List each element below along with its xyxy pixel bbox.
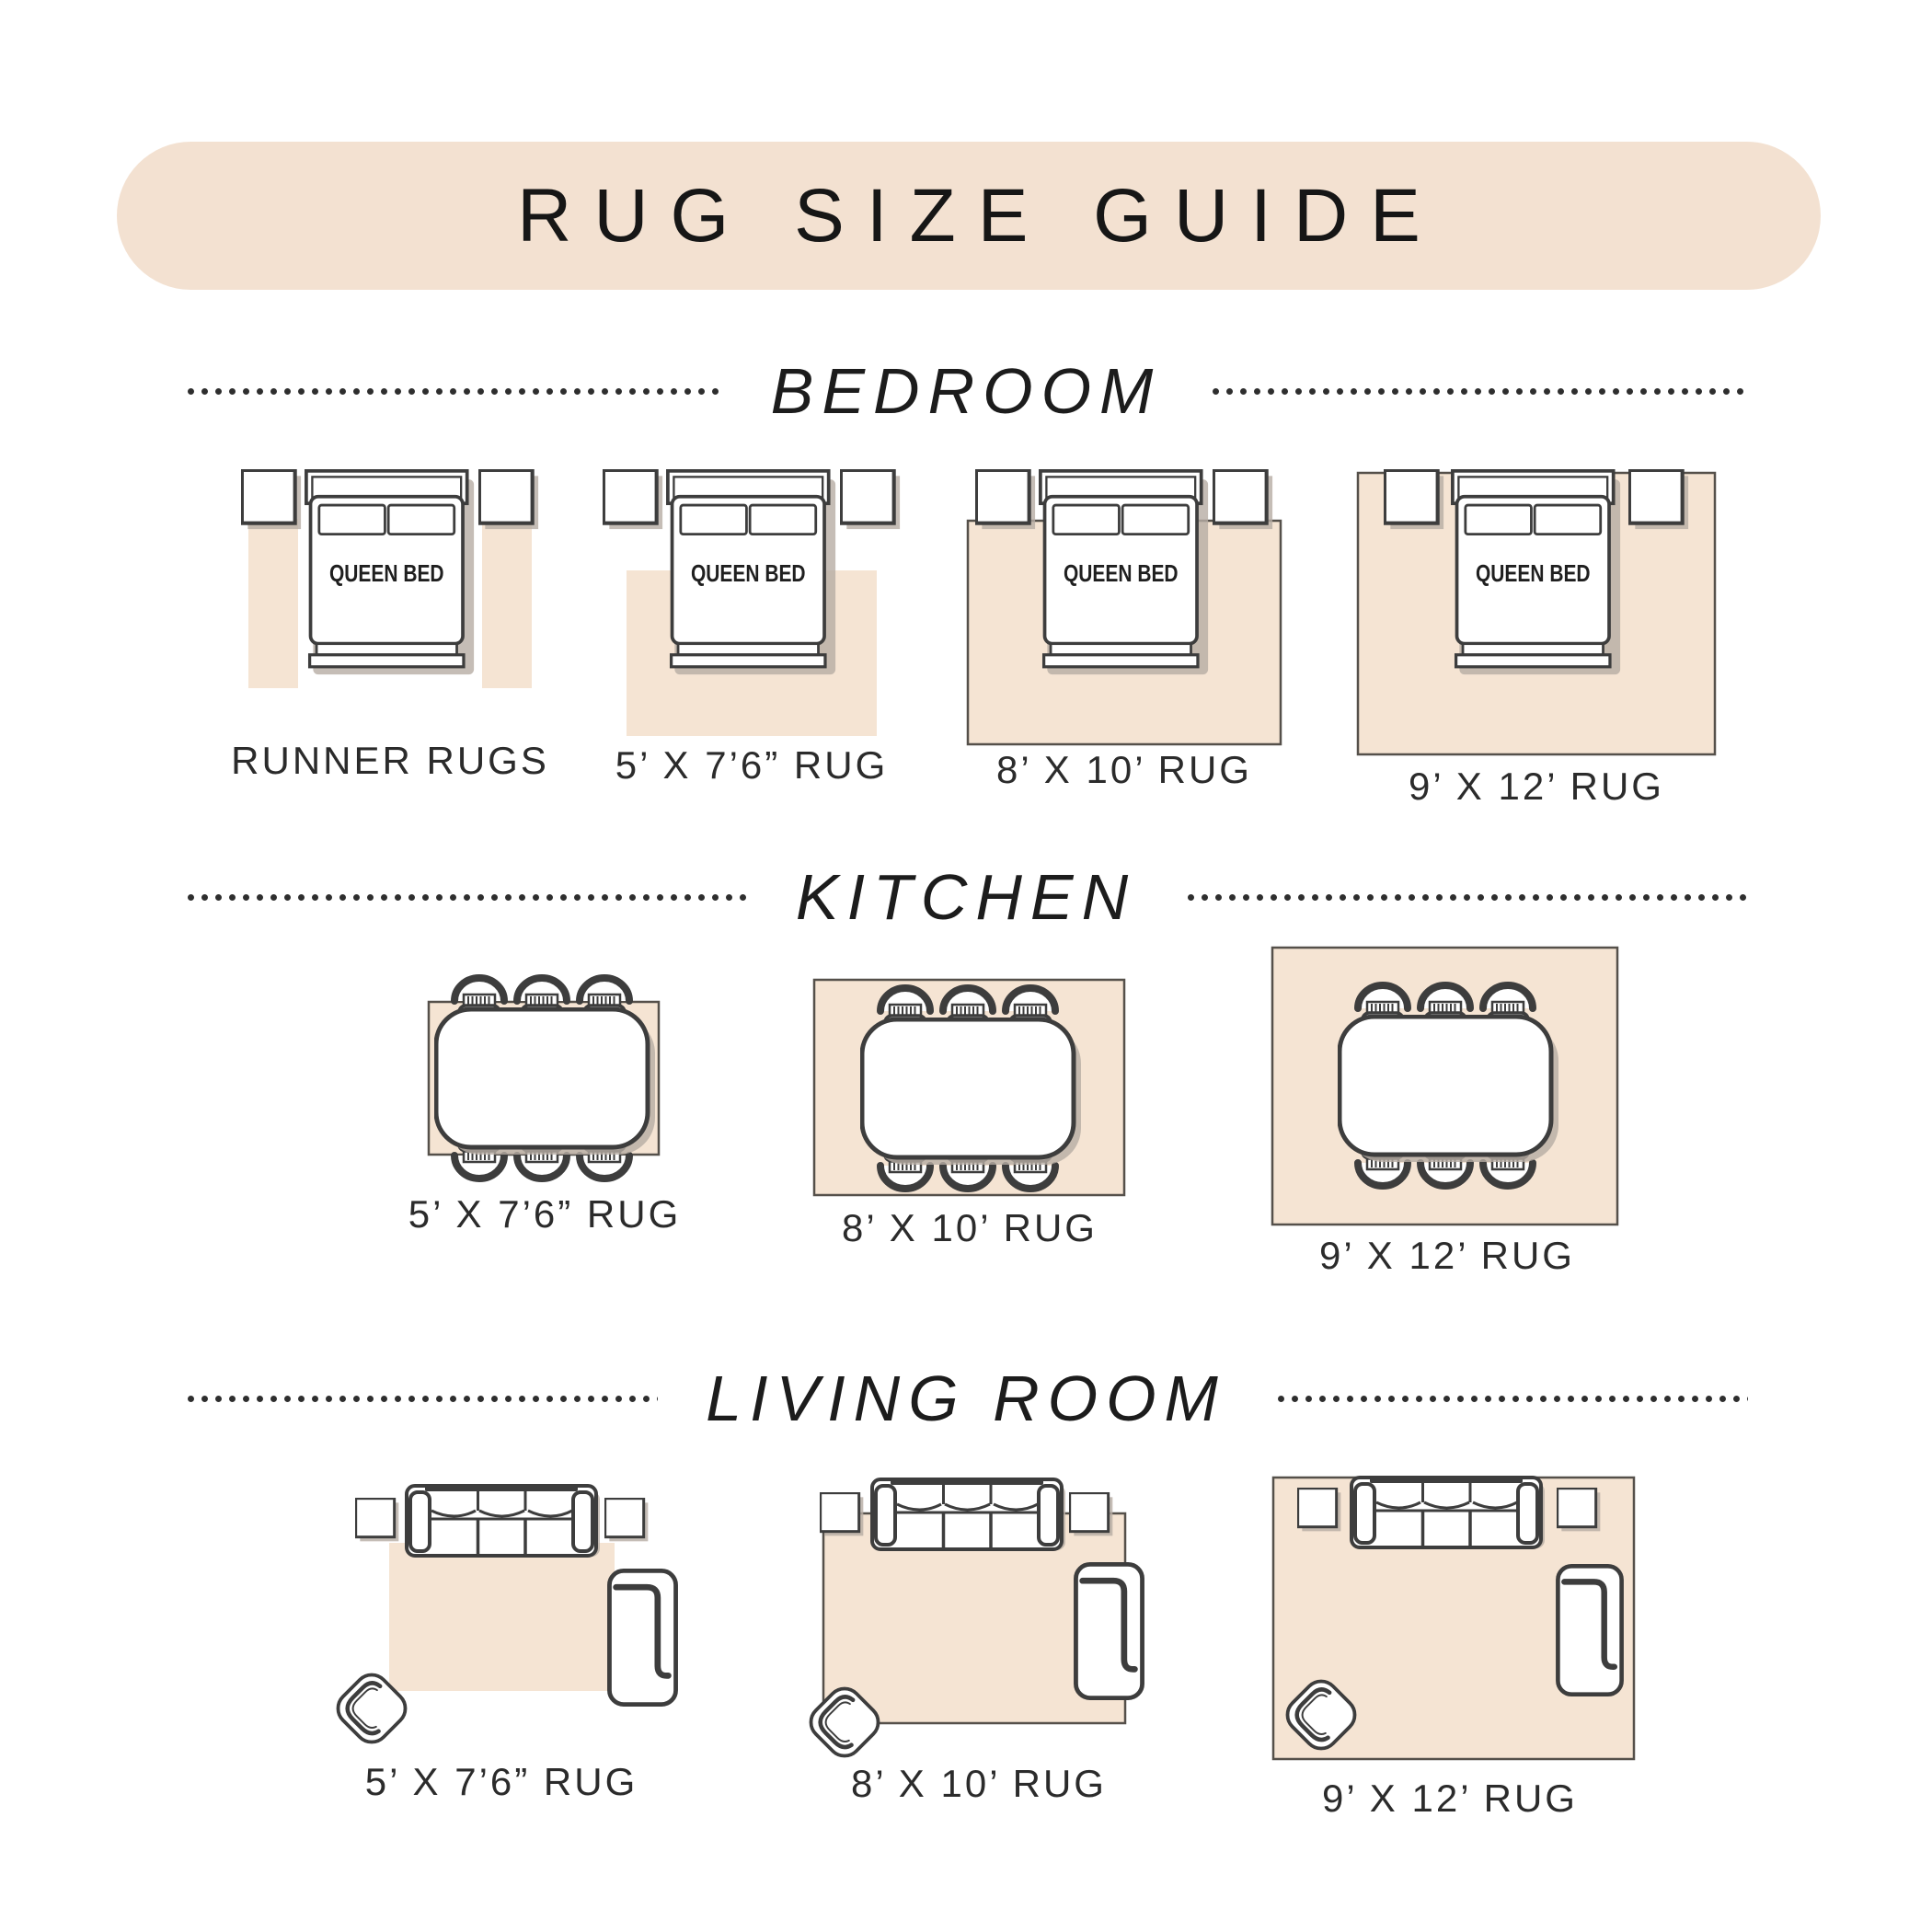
kitchen-5x76-diagram	[419, 957, 685, 1194]
section-title-living-room: LIVING ROOM	[706, 1362, 1226, 1435]
nightstand-right	[1213, 470, 1272, 529]
bedroom-runner-rugs-diagram	[241, 466, 539, 697]
side-table-right	[1558, 1489, 1601, 1532]
rug-size-label: 9’ X 12’ RUG	[1409, 765, 1664, 809]
side-table-left	[1298, 1489, 1341, 1532]
dining-table	[862, 1019, 1081, 1165]
livingroom-9x12-diagram	[1266, 1470, 1638, 1766]
dotted-line	[1274, 1395, 1748, 1403]
nightstand-right	[1629, 470, 1688, 529]
section-title-bedroom: BEDROOM	[771, 354, 1162, 428]
dotted-line	[184, 1395, 658, 1403]
rug-size-label: 9’ X 12’ RUG	[1322, 1777, 1578, 1821]
rug-size-label: 8’ X 10’ RUG	[842, 1206, 1098, 1250]
sofa	[872, 1478, 1065, 1550]
side-table-right	[1070, 1493, 1113, 1536]
nightstand-left	[604, 470, 662, 529]
queen-bed	[668, 471, 835, 674]
queen-bed	[1041, 471, 1208, 674]
queen-bed	[1453, 471, 1620, 674]
rug-size-label: 8’ X 10’ RUG	[996, 748, 1252, 792]
runner-rug-left	[248, 519, 298, 688]
dotted-line	[1184, 893, 1748, 902]
rug-size-label: RUNNER RUGS	[231, 739, 549, 783]
dotted-line	[184, 893, 748, 902]
side-table-left	[356, 1499, 399, 1542]
bedroom-8x10-diagram	[966, 466, 1282, 746]
section-header-bedroom: BEDROOM	[184, 351, 1748, 431]
nightstand-left	[976, 470, 1035, 529]
area-rug	[389, 1543, 615, 1691]
rug-size-label: 8’ X 10’ RUG	[851, 1762, 1107, 1806]
nightstand-right	[479, 470, 538, 529]
chaise-chair	[1558, 1566, 1621, 1694]
livingroom-8x10-diagram	[808, 1467, 1150, 1766]
chaise-chair	[1075, 1564, 1142, 1697]
rug-size-label: 9’ X 12’ RUG	[1319, 1234, 1575, 1278]
kitchen-9x12-diagram	[1270, 943, 1621, 1228]
side-table-right	[605, 1499, 649, 1542]
kitchen-8x10-diagram	[810, 957, 1127, 1203]
bedroom-5x76-diagram	[603, 466, 901, 742]
runner-rug-right	[482, 519, 532, 688]
nightstand-right	[841, 470, 900, 529]
sofa	[407, 1485, 600, 1557]
title-banner: RUG SIZE GUIDE	[117, 142, 1821, 290]
dotted-line	[1209, 387, 1748, 396]
page-title: RUG SIZE GUIDE	[495, 173, 1443, 259]
rug-size-label: 5’ X 7’6” RUG	[365, 1760, 638, 1804]
livingroom-5x76-diagram	[331, 1472, 681, 1762]
nightstand-left	[1385, 470, 1443, 529]
dotted-line	[184, 387, 723, 396]
queen-bed	[306, 471, 474, 674]
rug-size-label: 5’ X 7’6” RUG	[615, 743, 889, 788]
rug-size-guide-infographic: QUEEN BED	[0, 0, 1932, 1932]
dining-table	[1340, 1017, 1558, 1162]
chaise-chair	[609, 1570, 675, 1704]
side-table-left	[821, 1493, 864, 1536]
section-title-kitchen: KITCHEN	[796, 860, 1136, 934]
bedroom-9x12-diagram	[1355, 462, 1718, 758]
dining-table	[436, 1009, 655, 1155]
section-header-kitchen: KITCHEN	[184, 857, 1748, 937]
nightstand-left	[242, 470, 301, 529]
sofa	[1351, 1477, 1545, 1548]
rug-size-label: 5’ X 7’6” RUG	[408, 1192, 682, 1236]
section-header-living-room: LIVING ROOM	[184, 1358, 1748, 1439]
